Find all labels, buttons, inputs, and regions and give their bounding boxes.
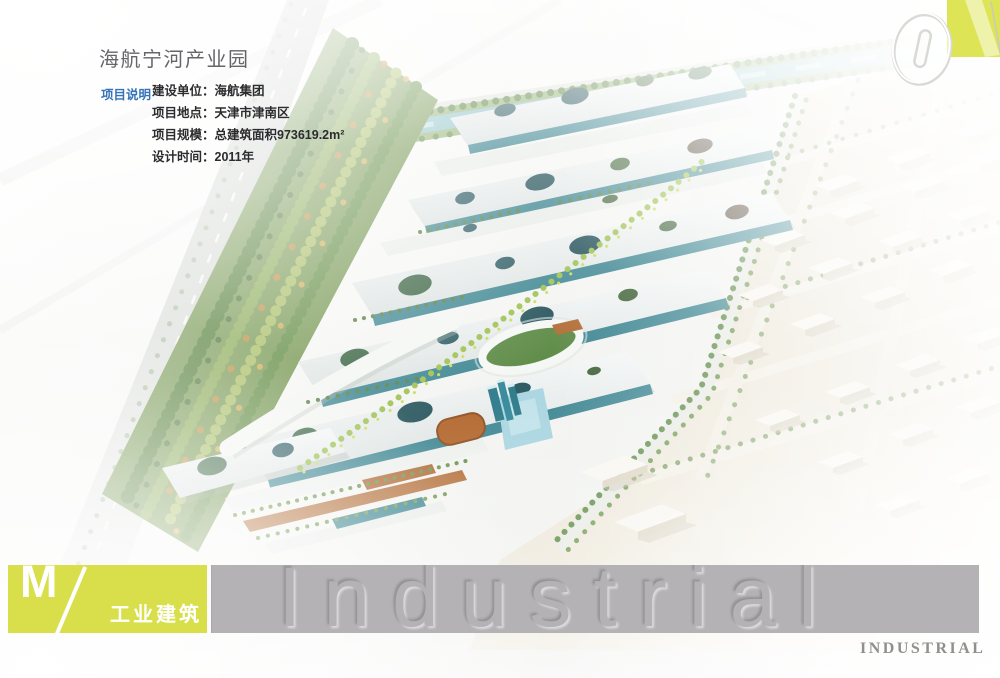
logo-letter: M: [20, 556, 58, 608]
watermark-band: Industrial: [211, 565, 979, 633]
category-logo-block: M / 工业建筑: [8, 565, 207, 633]
watermark-caps: INDUSTRIAL: [860, 640, 985, 658]
watermark-embossed: Industrial: [278, 565, 839, 629]
category-label: 工业建筑: [110, 598, 202, 627]
info-row-location: 项目地点：天津市津南区: [152, 106, 344, 128]
info-row-scale: 项目规模：总建筑面积973619.2m²: [152, 128, 344, 150]
page-title: 海航宁河产业园: [99, 43, 250, 72]
info-row-year: 设计时间：2011年: [152, 150, 344, 172]
page-number-graphic-icon: [870, 0, 1000, 100]
info-label: 项目说明: [101, 84, 151, 103]
info-row-owner: 建设单位：海航集团: [152, 84, 344, 106]
info-rows: 建设单位：海航集团 项目地点：天津市津南区 项目规模：总建筑面积973619.2…: [152, 84, 344, 172]
portfolio-page: 海航宁河产业园 项目说明 建设单位：海航集团 项目地点：天津市津南区 项目规模：…: [0, 0, 1000, 678]
logo-slash-icon: /: [55, 566, 87, 635]
page-number: 01: [870, 0, 1000, 100]
